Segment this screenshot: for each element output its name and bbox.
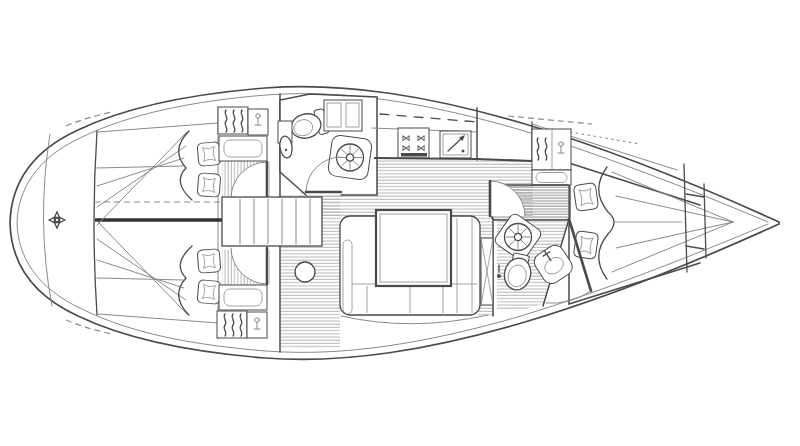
- head-top-center: [278, 94, 377, 195]
- pillow: [197, 142, 221, 167]
- lower-wardrobe: [217, 311, 267, 338]
- pillow: [573, 183, 598, 212]
- stove: ⋈ ⋈ ⋈ ⋈: [398, 128, 429, 158]
- right-wardrobe: [532, 129, 571, 170]
- right-shelf: [532, 170, 571, 185]
- shower-drain-wheel: [505, 224, 532, 251]
- companionway-steps: [222, 197, 322, 246]
- burner-icon: ⋈: [402, 133, 411, 143]
- mirror-locker: [481, 238, 493, 305]
- burner-icon: ⋈: [417, 133, 426, 143]
- pillow: [197, 249, 221, 273]
- pillow: [197, 173, 221, 197]
- upper-cabinet: [219, 136, 267, 161]
- wall-cabinet: [324, 100, 362, 131]
- pillow: [197, 280, 221, 305]
- floor-plan-canvas: ⋈ ⋈ ⋈ ⋈: [0, 0, 800, 446]
- saloon-table: [376, 210, 451, 286]
- chart-locker-with-arrow: [440, 131, 471, 158]
- mast-post: [295, 262, 315, 282]
- saloon: [340, 210, 488, 324]
- upper-wardrobe: [218, 107, 268, 135]
- burner-icon: ⋈: [417, 143, 426, 153]
- boat-floor-plan: ⋈ ⋈ ⋈ ⋈: [0, 0, 800, 446]
- burner-icon: ⋈: [402, 143, 411, 153]
- lower-cabinet: [219, 285, 267, 310]
